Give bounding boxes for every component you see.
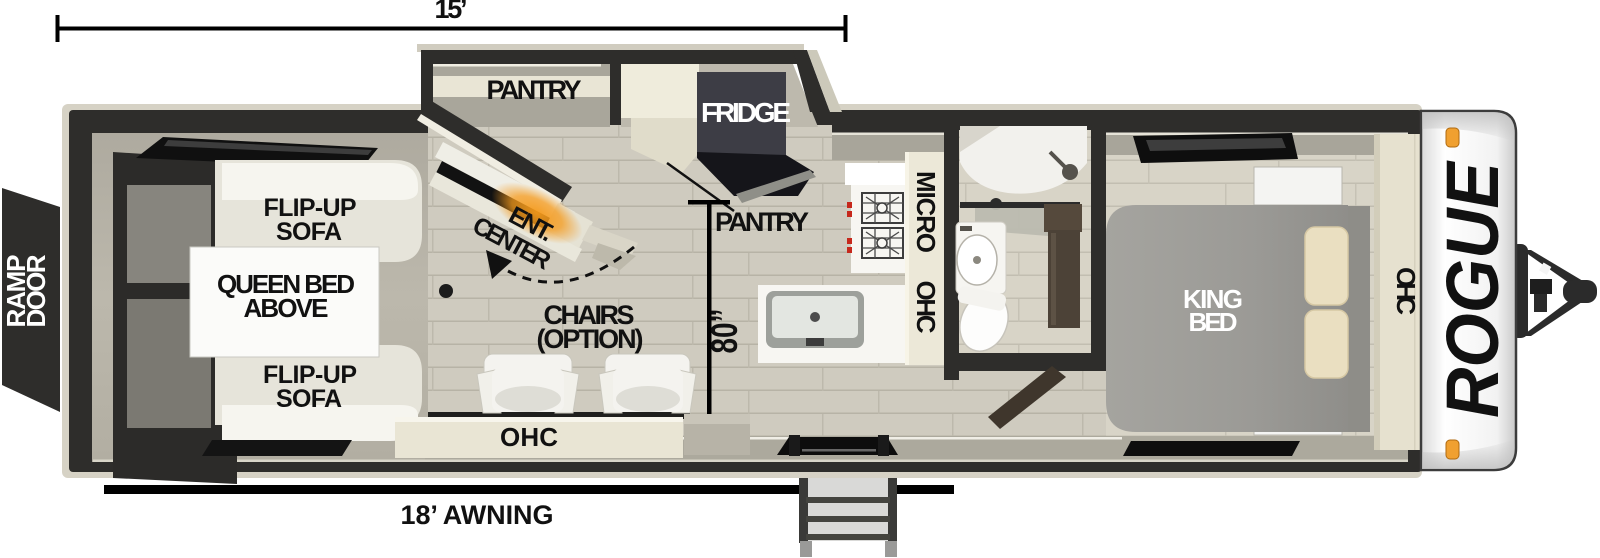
svg-text:80”: 80” (704, 309, 745, 354)
svg-text:SOFA: SOFA (276, 385, 342, 413)
svg-text:ROGUE: ROGUE (1431, 160, 1514, 418)
svg-text:MICRO: MICRO (911, 171, 941, 253)
svg-text:BED: BED (1189, 307, 1238, 337)
svg-text:OHC: OHC (911, 281, 941, 334)
svg-text:OHC: OHC (1391, 267, 1421, 315)
svg-text:SOFA: SOFA (276, 218, 342, 246)
svg-text:ABOVE: ABOVE (244, 293, 329, 323)
svg-text:DOOR: DOOR (21, 254, 51, 327)
svg-text:PANTRY: PANTRY (715, 207, 809, 237)
svg-text:PANTRY: PANTRY (487, 75, 582, 105)
svg-text:18’ AWNING: 18’ AWNING (401, 500, 554, 530)
svg-text:OHC: OHC (500, 422, 558, 452)
svg-text:FRIDGE: FRIDGE (701, 97, 791, 128)
svg-text:15’: 15’ (435, 0, 468, 24)
svg-text:(OPTION): (OPTION) (537, 324, 644, 354)
